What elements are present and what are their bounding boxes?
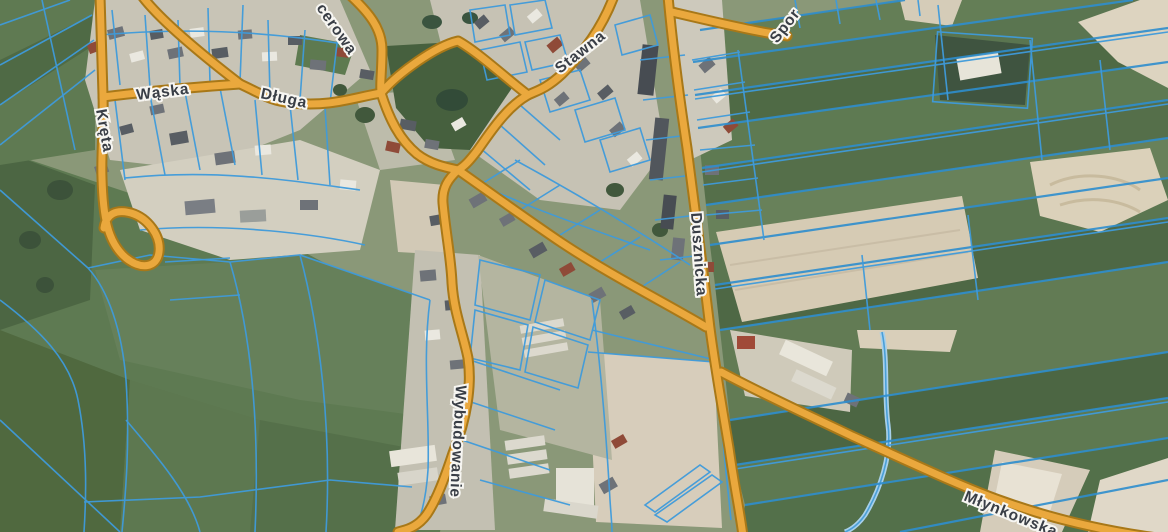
map-viewport[interactable]: Kręta Wąska Długa cerowa Stawna Spor Dus… xyxy=(0,0,1168,532)
pond xyxy=(436,89,468,111)
map-canvas: Kręta Wąska Długa cerowa Stawna Spor Dus… xyxy=(0,0,1168,532)
red-roof-farmhouse xyxy=(737,336,755,349)
